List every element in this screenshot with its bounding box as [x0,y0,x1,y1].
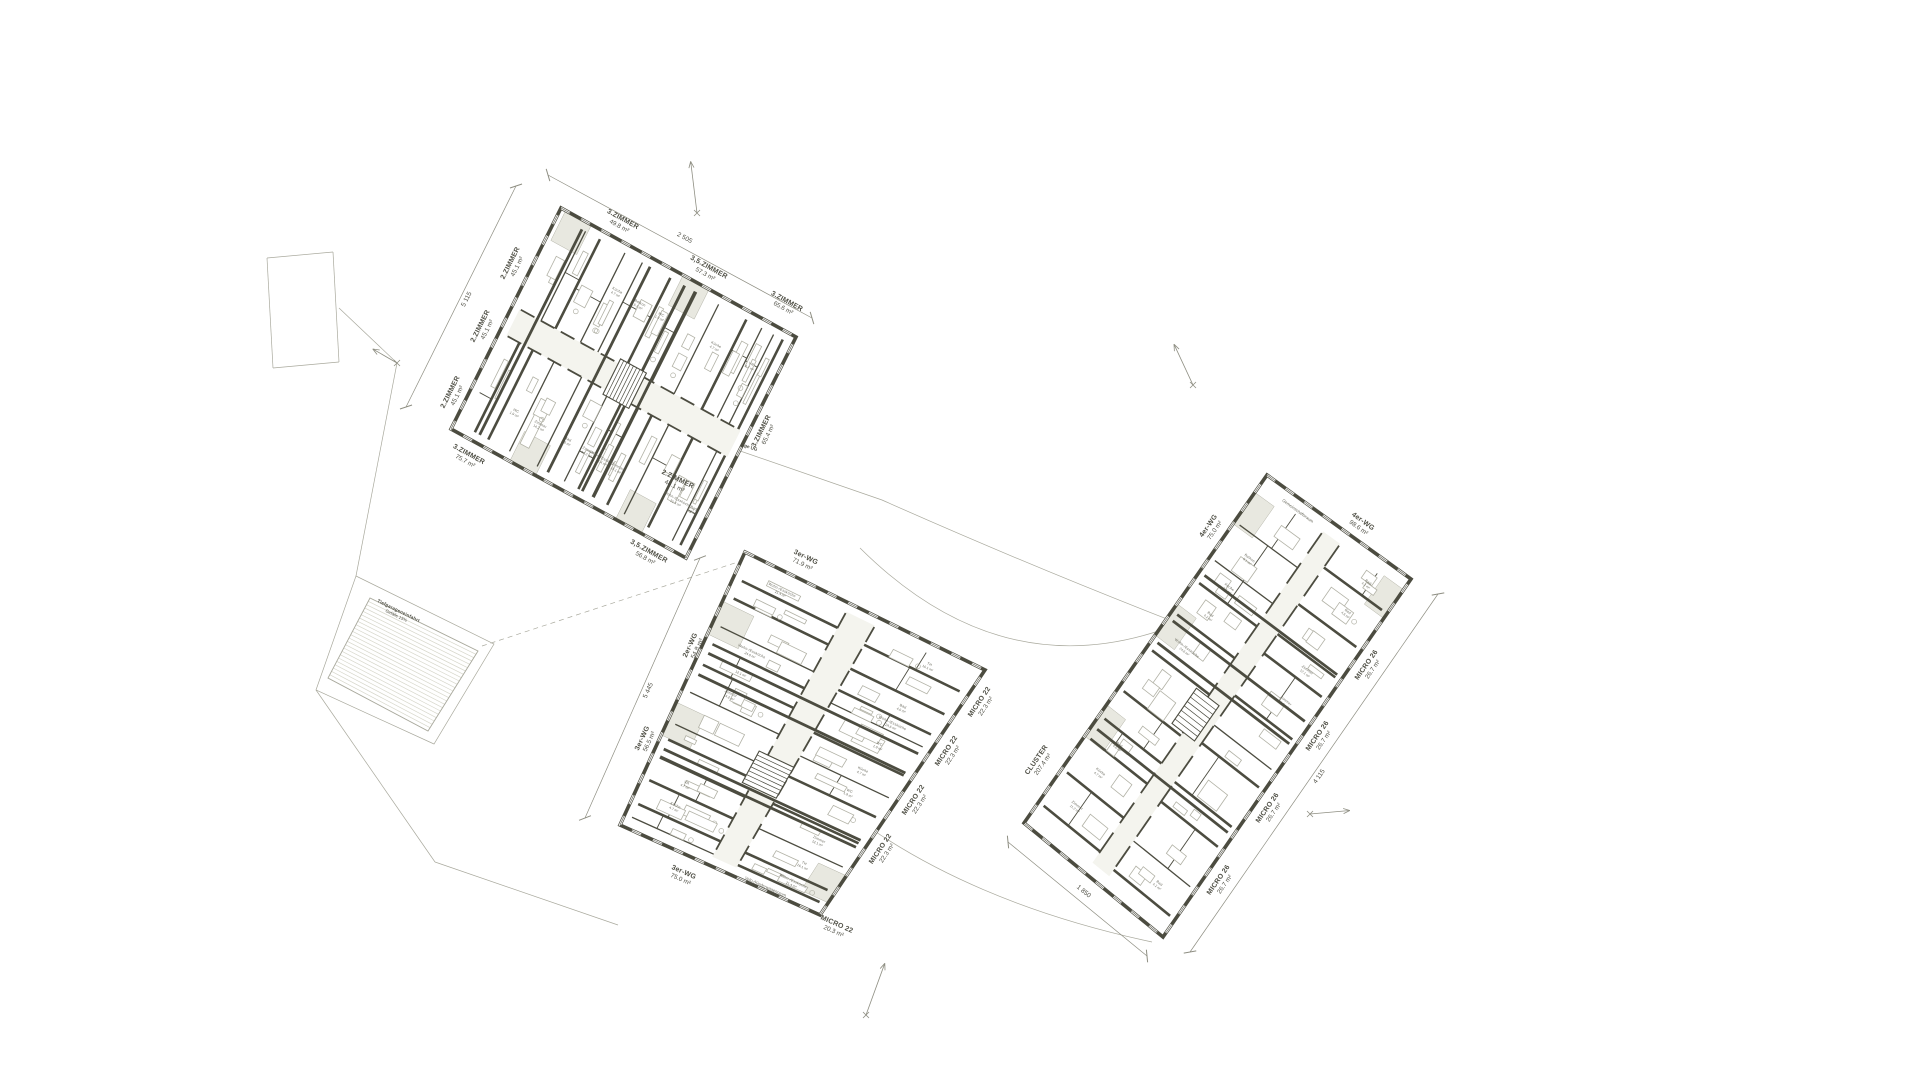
unit-label: 3er-WG75.0 m² [667,864,697,888]
dimension-label: 1 850 [1075,884,1092,900]
site-plan-canvas: TiefgarageneinfahrtGefälle 15%Tiefgarage… [0,0,1920,1080]
unit-label: 3.ZIMMER75.7 m² [448,443,486,473]
unit-label: MICRO 2220.3 m² [816,914,854,941]
building-west: Küche4.7 m²Balkon5.1 m²WC1.9 m²Küche4.7 … [440,208,804,571]
survey-marker [1307,809,1350,817]
survey-marker [1174,344,1196,388]
building-east: Balkon5.1 m²Küche4.7 m²Bad4.2 m²Wohn-/Es… [1024,475,1411,937]
dimension-label: 2 505 [676,231,694,245]
unit-label: 3er-WG71.9 m² [789,549,819,574]
unit-label: 3.ZIMMER65.6 m² [766,290,804,320]
unit-label: CLUSTER207.4 m² [1024,744,1056,781]
survey-marker [373,349,400,366]
survey-marker [863,963,885,1018]
dimension-label: 4 115 [1312,768,1327,785]
garage-ramp: TiefgarageneinfahrtGefälle 15% [316,576,494,744]
survey-marker [689,161,700,216]
site-plan-svg: TiefgarageneinfahrtGefälle 15%Tiefgarage… [0,0,1920,1080]
dimension-label: 5 115 [460,290,473,308]
